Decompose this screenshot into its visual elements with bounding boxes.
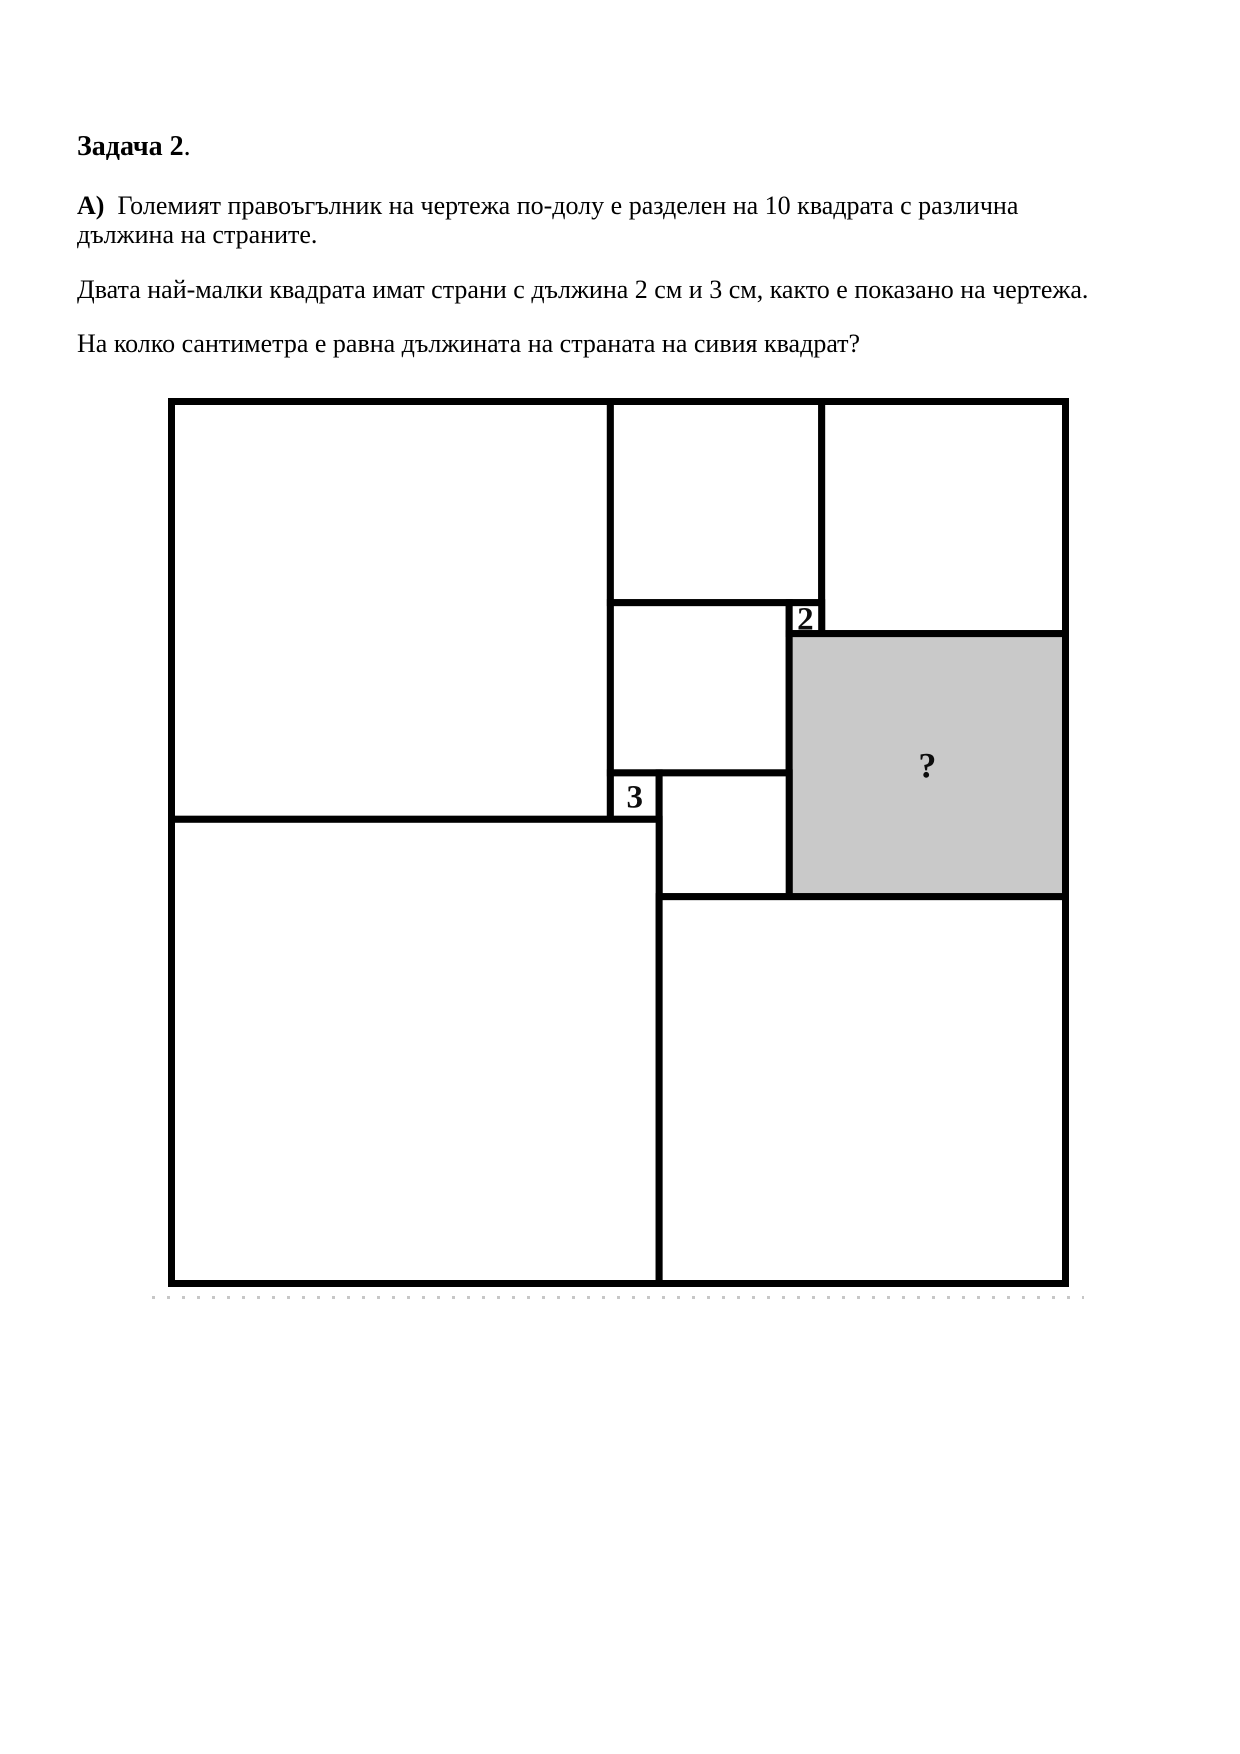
label-smallest-2: 2: [797, 601, 814, 637]
square-bottom-left: [172, 819, 660, 1283]
label-smallest-3: 3: [627, 779, 644, 815]
square-top-right: [822, 402, 1066, 634]
square-top-middle: [610, 402, 821, 603]
dotted-line: [152, 1296, 1084, 1299]
document-page: Задача 2. А)Големият правоъгълник на чер…: [0, 0, 1240, 1754]
square-middle: [610, 603, 789, 773]
label-gray-square: ?: [918, 745, 936, 785]
square-bottom-right: [659, 897, 1065, 1284]
squares-figure: 2?3: [0, 0, 1240, 1754]
square-middle-small: [659, 773, 789, 897]
square-top-left: [172, 402, 611, 820]
